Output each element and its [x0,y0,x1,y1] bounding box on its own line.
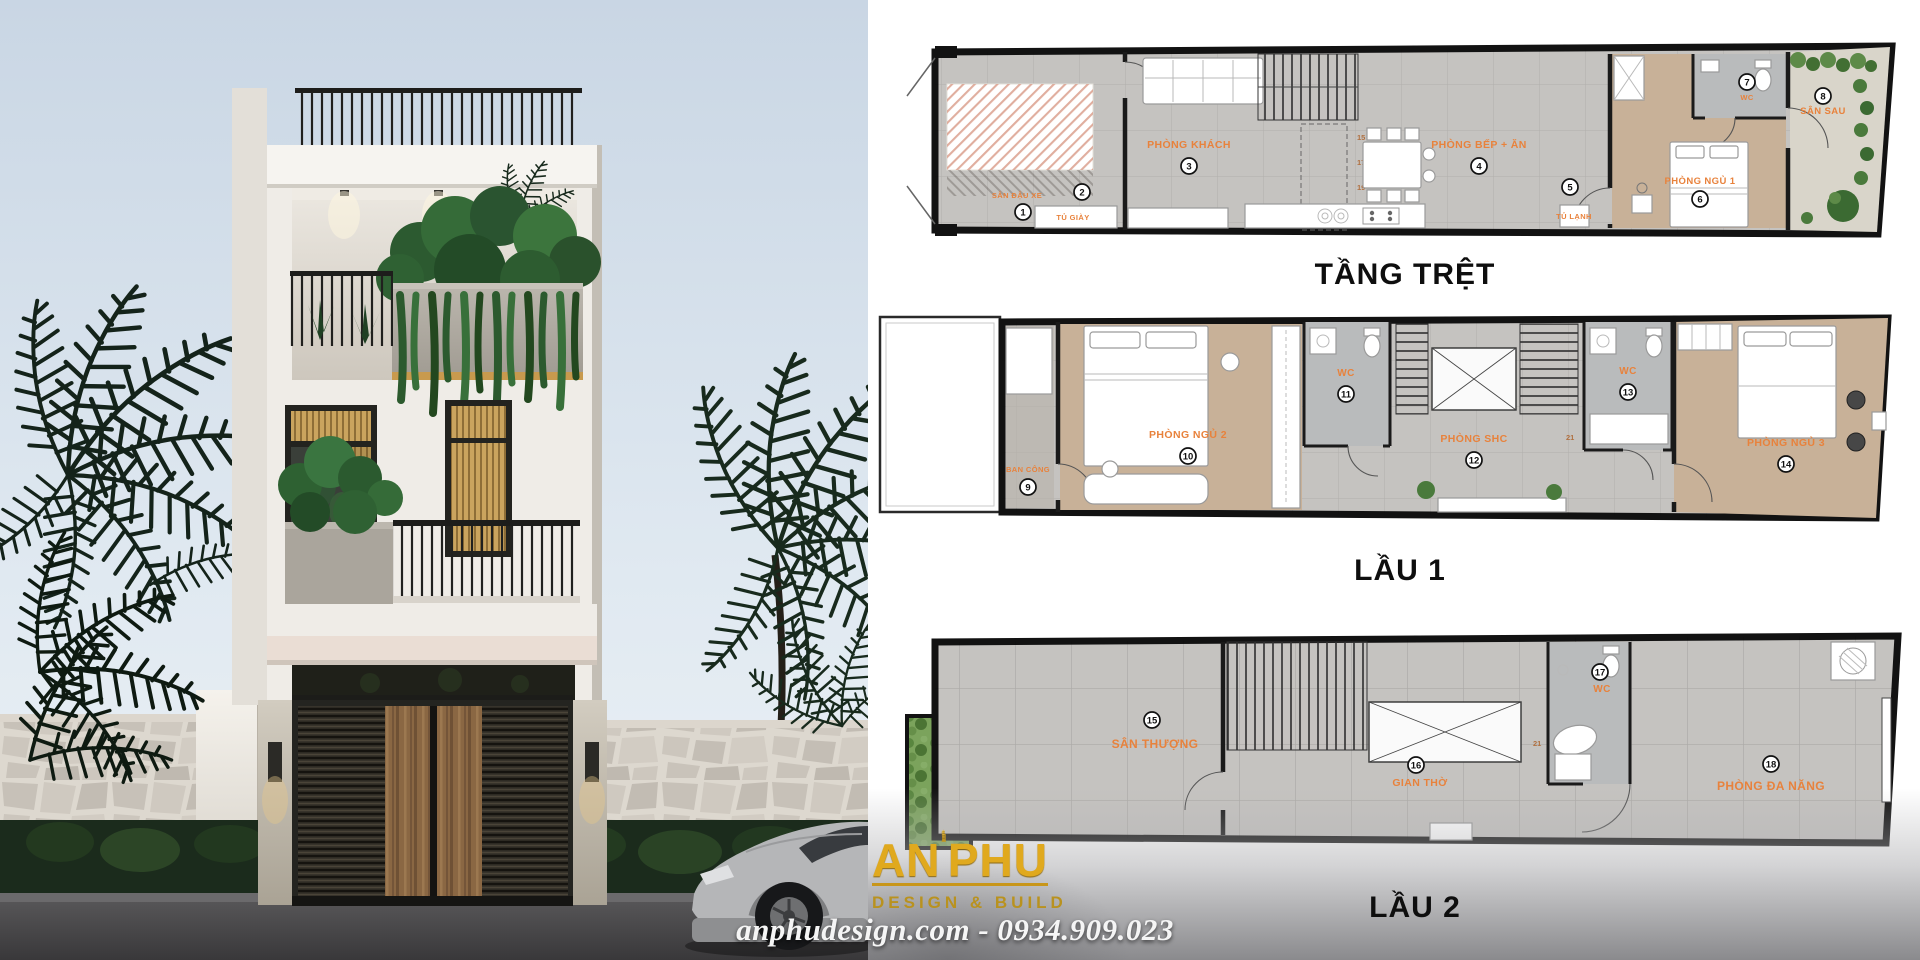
room-marker-12: 12 [1466,452,1482,468]
svg-text:1: 1 [1020,208,1026,219]
ground-floor-gate [258,665,607,906]
room-marker-13: 13 [1620,384,1636,400]
gate-leaf-left-louver [298,706,385,900]
room-label-san-sau: SÂN SAU [1800,105,1846,117]
room-label-wc-7: WC [1740,93,1753,102]
svg-text:6: 6 [1697,195,1702,206]
room-marker-17: 17 [1592,664,1608,680]
room-label-phong-ngu-2: PHÒNG NGỦ 2 [1149,428,1227,441]
svg-text:13: 13 [1623,388,1634,399]
svg-text:10: 10 [1183,452,1194,463]
stair-number: 21 [1566,433,1574,442]
balcony-cabinet [1006,328,1052,394]
stair-number: 21 [1533,739,1541,748]
svg-text:16: 16 [1411,761,1422,772]
room-marker-10: 10 [1180,448,1196,464]
gate-leaf-right-wood [437,706,482,900]
svg-text:8: 8 [1820,92,1825,103]
upper-balcony [290,156,601,417]
room-marker-7: 7 [1739,74,1755,90]
logo-text-phu: PHU [948,841,1048,880]
room-marker-15: 15 [1144,712,1160,728]
contact-line: anphudesign.com - 0934.909.023 [735,912,1175,948]
wardrobe [1678,324,1732,350]
balcony-railing-icon [393,520,580,603]
gate-leaf-right-louver [482,706,568,900]
dining-table [1363,142,1421,188]
toilet [1755,69,1771,91]
plant-icon [1417,481,1435,499]
room-marker-5: 5 [1562,179,1578,195]
svg-text:3: 3 [1186,162,1191,173]
car-parking-hatch [947,84,1093,170]
room-marker-6: 6 [1692,191,1708,207]
room-marker-2: 2 [1074,184,1090,200]
room-label-tu-giay: TỦ GIÀY [1056,213,1089,222]
room-marker-14: 14 [1778,456,1794,472]
anphu-house-presentation: { "branding": { "logo_text_1": "AN", "lo… [0,0,1920,960]
plant-icon [1546,484,1562,500]
room-marker-18: 18 [1763,756,1779,772]
room-marker-3: 3 [1181,158,1197,174]
house-3d-render [0,0,868,960]
chair [1221,353,1239,371]
svg-text:11: 11 [1341,390,1352,401]
vanity [1084,474,1208,504]
floor-title-lau-1: LẦU 1 [1295,554,1505,588]
room-label-ban-cong: BAN CÔNG [1006,465,1050,474]
logo-tower-icon [941,792,946,880]
room-label-san-dau-xe: SÂN ĐẬU XE [992,191,1042,200]
svg-text:4: 4 [1476,162,1482,173]
window [1882,698,1891,802]
gate-leaf-left-wood [385,706,430,900]
svg-text:18: 18 [1766,760,1777,771]
roof-railing-icon [295,88,582,147]
anphu-logo: AN PHU DESIGN & BUILD [872,792,1048,913]
front-void [880,317,1000,512]
room-label-wc-13: WC [1619,366,1636,377]
svg-text:14: 14 [1781,460,1792,471]
tv-console [1438,498,1566,512]
chair [1847,391,1865,409]
svg-text:9: 9 [1025,483,1030,494]
house-facade [232,88,607,906]
room-label-san-thuong: SÂN THƯỢNG [1112,736,1199,751]
svg-text:17: 17 [1595,668,1606,679]
nightstand [1632,195,1652,213]
upper-balcony-railing-icon [290,271,393,346]
room-label-phong-khach: PHÒNG KHÁCH [1147,138,1231,151]
logo-text-an: AN [872,841,940,880]
floor-plan-lau-1: 21 BAN CÔNG 9 PHÒNG NGỦ 2 10 WC 11 PHÒNG… [878,314,1920,552]
room-label-wc-11: WC [1337,368,1354,379]
room-marker-4: 4 [1471,158,1487,174]
stair-number: 15 [1357,133,1365,142]
room-label-phong-shc: PHÒNG SHC [1440,432,1507,445]
room-marker-11: 11 [1338,386,1354,402]
svg-text:2: 2 [1079,188,1084,199]
floor-plan-tang-tret: 15 17 19 21 [895,38,1910,252]
chair [1847,433,1865,451]
room-label-tu-lanh: TỦ LẠNH [1556,212,1592,221]
tv-console [1128,208,1228,228]
floor-title-lau-2: LẦU 2 [1310,891,1520,925]
svg-text:12: 12 [1469,456,1480,467]
svg-text:15: 15 [1147,716,1158,727]
shower [1590,414,1668,444]
sink [1701,60,1719,72]
floor-title-tang-tret: TẦNG TRỆT [1300,258,1510,292]
house-side-wall [232,88,267,705]
room-label-phong-ngu-1: PHÒNG NGỦ 1 [1665,175,1736,187]
room-marker-9: 9 [1020,479,1036,495]
svg-text:7: 7 [1744,78,1749,89]
room-label-phong-bep-an: PHÒNG BẾP + ĂN [1431,138,1527,151]
side-table [1872,412,1886,430]
room-label-phong-ngu-3: PHÒNG NGỦ 3 [1747,436,1825,449]
room-marker-1: 1 [1015,204,1031,220]
room-marker-16: 16 [1408,757,1424,773]
svg-text:5: 5 [1567,183,1573,194]
gate-swing-lines [907,58,935,224]
logo-tagline: DESIGN & BUILD [872,893,1048,913]
room-label-wc-17: WC [1593,684,1610,695]
room-marker-8: 8 [1815,88,1831,104]
